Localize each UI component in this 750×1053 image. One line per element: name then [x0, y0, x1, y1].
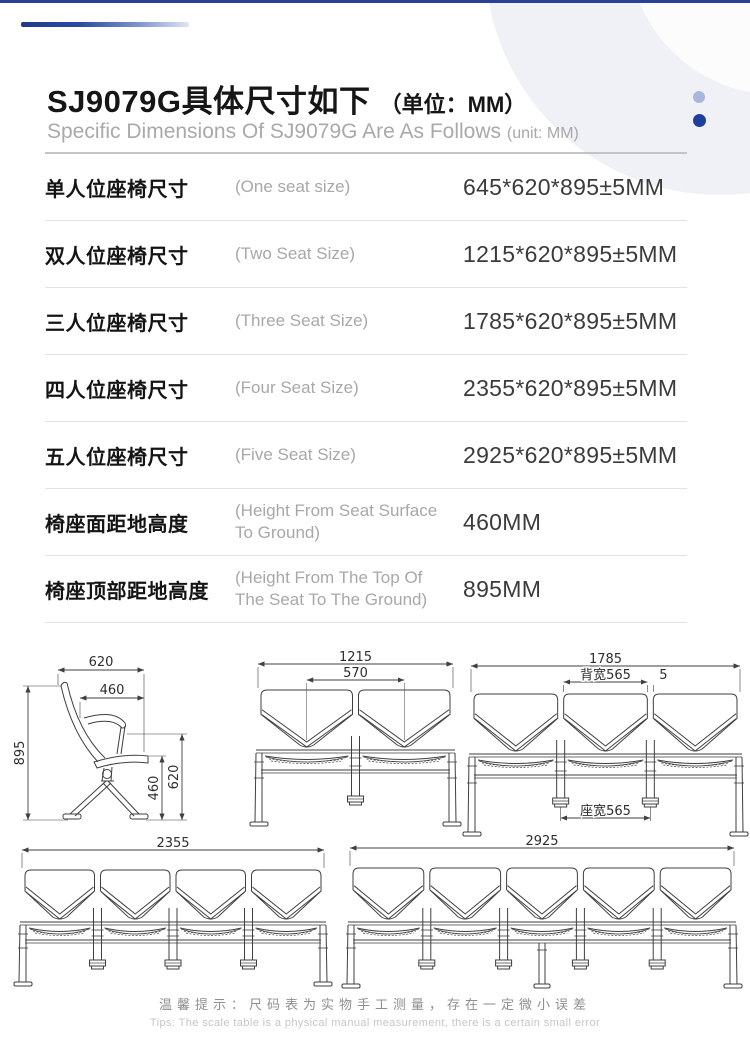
spec-label-cn: 椅座顶部距地高度 — [45, 575, 235, 604]
dim-label: 570 — [343, 666, 368, 681]
dim-top-width: 620 — [89, 655, 114, 670]
spec-value: 1785*620*895±5MM — [463, 308, 687, 335]
spec-label-en: (Five Seat Size) — [235, 444, 440, 466]
spec-table: 单人位座椅尺寸 (One seat size) 645*620*895±5MM … — [45, 152, 687, 623]
footer-tip-cn: 温馨提示：尺码表为实物手工测量，存在一定微小误差 — [0, 994, 750, 1013]
header-accent-line — [21, 22, 189, 27]
spec-label-en: (Two Seat Size) — [235, 243, 440, 265]
dot-light — [693, 91, 705, 103]
spec-label-en: (Height From Seat Surface To Ground) — [235, 500, 440, 544]
spec-label-cn: 单人位座椅尺寸 — [45, 173, 235, 202]
dim-back-height: 620 — [167, 765, 182, 790]
dim-label: 1785 — [589, 652, 622, 667]
spec-label-en: (Three Seat Size) — [235, 310, 440, 332]
spec-label-en: (Four Seat Size) — [235, 377, 440, 399]
footer-tip-en: Tips: The scale table is a physical manu… — [0, 1017, 750, 1029]
drawing-front-view-five-seat: 2925 — [340, 836, 744, 1000]
spec-row: 椅座顶部距地高度 (Height From The Top Of The Sea… — [45, 556, 687, 623]
spec-row: 三人位座椅尺寸 (Three Seat Size) 1785*620*895±5… — [45, 288, 687, 355]
spec-value: 460MM — [463, 509, 687, 536]
top-accent-bar — [0, 0, 750, 3]
page-subtitle: Specific Dimensions Of SJ9079G Are As Fo… — [47, 120, 579, 144]
spec-value: 895MM — [463, 576, 687, 603]
spec-value: 1215*620*895±5MM — [463, 241, 687, 268]
page-title-unit: （单位：MM） — [380, 92, 527, 117]
product-dimension-sheet: SJ9079G具体尺寸如下 （单位：MM） Specific Dimension… — [0, 0, 750, 1053]
dim-label: 2355 — [156, 836, 189, 851]
dim-seat-depth: 460 — [100, 683, 125, 698]
dim-label: 背宽565 — [580, 667, 631, 683]
page-subtitle-en: Specific Dimensions Of SJ9079G Are As Fo… — [47, 120, 501, 143]
page-title: SJ9079G具体尺寸如下 （单位：MM） — [47, 76, 526, 121]
dot-dark — [693, 114, 706, 127]
spec-row: 四人位座椅尺寸 (Four Seat Size) 2355*620*895±5M… — [45, 355, 687, 422]
spec-row: 单人位座椅尺寸 (One seat size) 645*620*895±5MM — [45, 154, 687, 221]
dim-label: 5 — [659, 668, 667, 683]
dim-label: 1215 — [339, 650, 372, 665]
spec-label-cn: 四人位座椅尺寸 — [45, 374, 235, 403]
decorative-dots — [691, 91, 707, 127]
spec-label-cn: 椅座面距地高度 — [45, 508, 235, 537]
drawing-front-view-four-seat: 2355 — [12, 838, 334, 998]
dim-label: 2925 — [525, 834, 558, 849]
spec-value: 2355*620*895±5MM — [463, 375, 687, 402]
page-subtitle-unit: (unit: MM) — [507, 125, 579, 142]
page-title-cn: SJ9079G具体尺寸如下 — [47, 84, 371, 119]
drawing-front-view-two-seat: 1215570 — [248, 650, 463, 838]
spec-label-cn: 五人位座椅尺寸 — [45, 441, 235, 470]
spec-row: 椅座面距地高度 (Height From Seat Surface To Gro… — [45, 489, 687, 556]
drawing-side-view-single-seat: 620 460 895 460 620 — [8, 648, 240, 840]
dim-seat-height: 460 — [147, 776, 162, 801]
spec-row: 五人位座椅尺寸 (Five Seat Size) 2925*620*895±5M… — [45, 422, 687, 489]
spec-value: 2925*620*895±5MM — [463, 442, 687, 469]
drawing-front-view-three-seat: 1785背宽5655座宽565 — [461, 648, 750, 846]
spec-label-cn: 三人位座椅尺寸 — [45, 307, 235, 336]
dim-total-height: 895 — [13, 741, 28, 766]
dim-label: 座宽565 — [580, 803, 631, 819]
spec-label-cn: 双人位座椅尺寸 — [45, 240, 235, 269]
spec-value: 645*620*895±5MM — [463, 174, 687, 201]
background-circle-highlight — [628, 0, 750, 95]
spec-label-en: (Height From The Top Of The Seat To The … — [235, 567, 440, 611]
spec-label-en: (One seat size) — [235, 176, 440, 198]
spec-row: 双人位座椅尺寸 (Two Seat Size) 1215*620*895±5MM — [45, 221, 687, 288]
